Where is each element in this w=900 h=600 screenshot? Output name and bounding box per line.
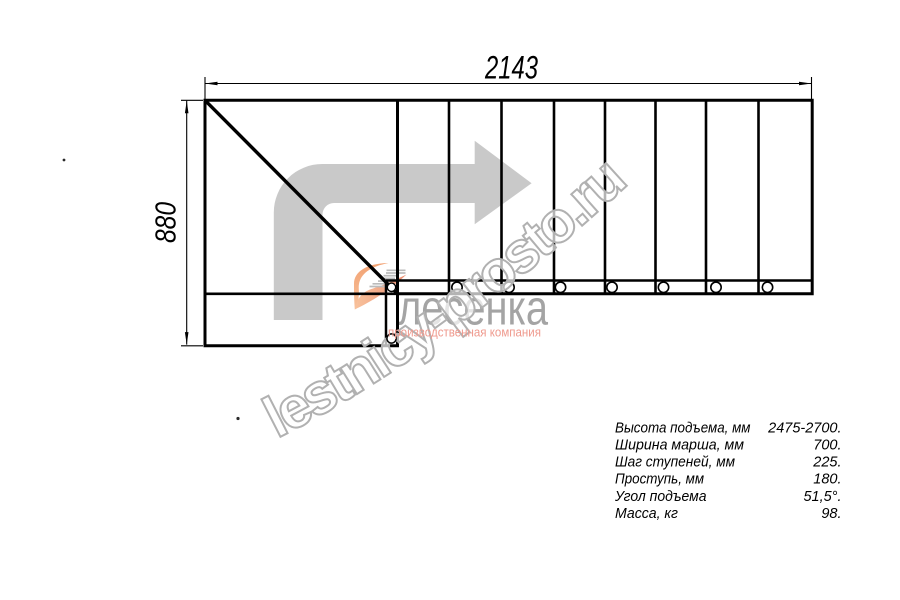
svg-text:51,5°.: 51,5°. [803, 489, 841, 505]
svg-text:Угол подъема: Угол подъема [614, 489, 706, 505]
svg-text:Ширина марша, мм: Ширина марша, мм [615, 438, 744, 454]
svg-text:Шаг ступеней, мм: Шаг ступеней, мм [615, 455, 735, 471]
svg-text:Масса, кг: Масса, кг [615, 506, 678, 522]
svg-text:2475-2700.: 2475-2700. [767, 421, 841, 437]
svg-text:2143: 2143 [484, 50, 538, 86]
svg-text:880: 880 [151, 202, 183, 243]
svg-text:Проступь, мм: Проступь, мм [615, 472, 704, 488]
svg-text:производственная компания: производственная компания [388, 325, 541, 340]
svg-text:98.: 98. [821, 506, 841, 522]
svg-text:700.: 700. [813, 438, 841, 454]
svg-text:225.: 225. [812, 455, 841, 471]
svg-text:Высота подъема, мм: Высота подъема, мм [615, 421, 751, 437]
svg-text:180.: 180. [813, 472, 841, 488]
